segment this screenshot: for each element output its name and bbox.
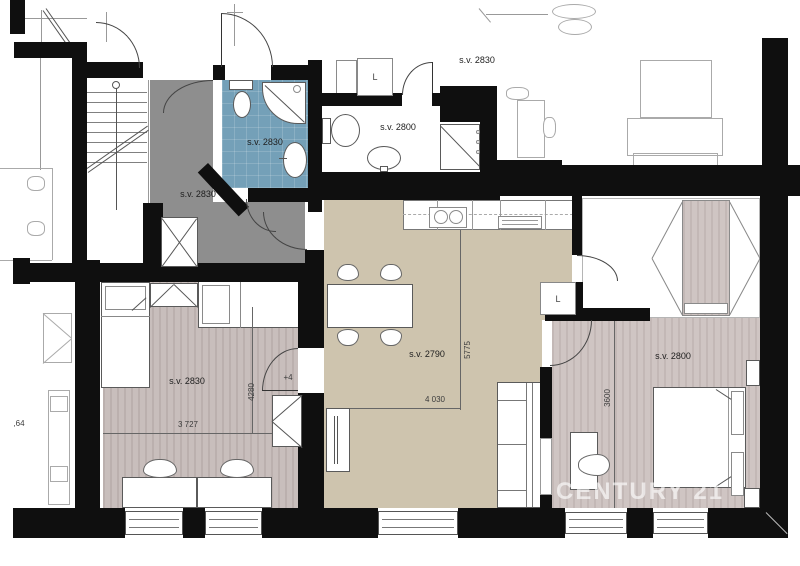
radiator [326,408,350,472]
stairwell-door-arc [96,22,140,68]
radiator-line [334,416,335,464]
wall-segment [498,165,800,196]
wall-segment [540,367,552,438]
room-label-bedroom-left: s.v. 2830 [142,377,232,387]
dimension-line [460,230,461,410]
window [653,512,708,534]
wall-segment [440,86,482,122]
wall-segment [75,260,100,510]
bed-blanket-line [728,388,729,487]
dimension-label-neighbor: ,64 [4,420,34,428]
wall-segment [213,65,225,80]
sofa-cushion-line [498,444,526,445]
building-edge-line [40,58,41,170]
neighbor-desk-line [0,168,52,169]
lamp-line [479,8,491,22]
chair-icon [578,454,610,476]
room-label-hall: s.v. 2830 [168,190,228,200]
lamp-line [486,14,548,15]
bedroom-left-door-leaf [262,390,298,391]
dimension-label-bedroom-left-height: 4280 [248,372,256,412]
room-label-bathroom1: s.v. 2830 [235,138,295,148]
room-label-corridor: s.v. 2830 [432,56,522,66]
sofa-back-line [526,383,527,507]
ceiling-lamp-icon [558,19,592,35]
stove-grill-line [502,220,538,221]
dining-table [327,284,413,328]
wall-segment [305,250,324,282]
room-label-bathroom2: s.v. 2800 [353,123,443,133]
wall-segment [627,508,653,538]
bed-blanket-line [101,316,150,317]
century21-watermark: CENTURY 21 [556,478,724,506]
neighbor-chair-icon [506,87,529,100]
neighbor-table [517,100,545,158]
dimension-label-bedroom-right-height: 3600 [604,378,612,418]
wardrobe [150,283,198,307]
sofa-back-line [532,383,533,507]
dimension-label-bedroom-left-width: 3 727 [143,421,233,429]
entrance-door-arc [221,13,273,67]
utility-closet-living: L [540,282,576,315]
toilet-icon [233,91,251,118]
wall-segment [183,508,205,538]
shower-head-icon [293,85,301,93]
wall-segment [540,495,552,508]
nightstand [744,488,760,508]
kitchen-cabinet-divider [472,200,473,230]
closet-label: L [372,72,377,82]
window [565,512,627,534]
stairwell-edge-line [148,80,149,204]
stove-icon [498,216,542,229]
chair-icon [380,264,402,281]
stair-direction-line [43,10,68,45]
desk [122,477,197,508]
bed-pillow [105,286,146,310]
stair-direction-line [46,8,71,43]
dimension-line [103,433,290,434]
wall-segment [458,508,565,538]
wall-segment [762,38,788,196]
neighbor-wardrobe-icon [43,313,72,363]
dimension-line [252,307,253,433]
room-label-bedroom-right: s.v. 2800 [628,352,718,362]
floor-plan: L L [0,0,800,566]
dimension-label-living-height: 5775 [464,330,472,370]
bathroom2-door-leaf [432,62,433,93]
window [205,511,262,535]
window [378,511,458,535]
window [125,511,183,535]
neighbor-cabinet-detail [50,466,68,482]
bed-pillow [731,452,744,496]
chair-icon [143,459,177,478]
bed-alcove-outline [582,198,760,318]
radiator-line [337,416,338,464]
desk [197,477,272,508]
ceiling-lamp-icon [552,4,596,19]
neighbor-bed [640,60,712,118]
neighbor-chair-icon [27,176,45,191]
wardrobe [272,395,302,447]
kitchen-sink-bowl-icon [434,210,448,224]
wall-segment [262,508,378,538]
dimension-label-living-width: 4 030 [390,396,480,404]
floor-level-marker: +4 [276,374,300,382]
wall-segment [760,318,788,538]
chair-icon [220,459,254,478]
wall-niche [540,438,552,495]
wall-segment [298,282,324,348]
bathroom2-door-arc [402,62,432,95]
sofa-cushion-line [498,490,526,491]
toilet-icon [322,118,331,144]
nightstand [746,360,760,386]
bed-blanket-line [240,281,241,328]
kitchen-sink-bowl-icon [449,210,463,224]
closet-niche [336,60,357,95]
neighbor-bed-frame [627,118,723,156]
wall-segment [10,0,25,34]
stair-handrail-post [112,81,120,89]
neighbor-desk-line [52,168,53,260]
corridor-line [41,10,42,43]
alcove-bed-foot [684,303,728,314]
sink-tap-icon [279,158,287,159]
bed-pillow [731,391,744,435]
room-label-living: s.v. 2790 [382,350,472,360]
toilet-icon [229,80,253,90]
kitchen-cabinet-divider [545,200,546,230]
wall-segment [13,508,125,538]
utility-closet-hall: L [357,58,393,96]
wall-segment [572,196,582,255]
closet-label: L [555,294,560,304]
bed-pillow [202,285,230,324]
neighbor-cabinet-detail [50,396,68,412]
alcove-bed [682,200,730,316]
wall-segment [143,203,163,263]
wall-segment [318,172,500,200]
sofa-cushion-line [498,400,526,401]
chair-icon [337,264,359,281]
neighbor-chair-icon [27,221,45,236]
neighbor-chair-icon [543,117,556,138]
wall-segment [760,196,788,318]
stove-grill-line [502,224,538,225]
